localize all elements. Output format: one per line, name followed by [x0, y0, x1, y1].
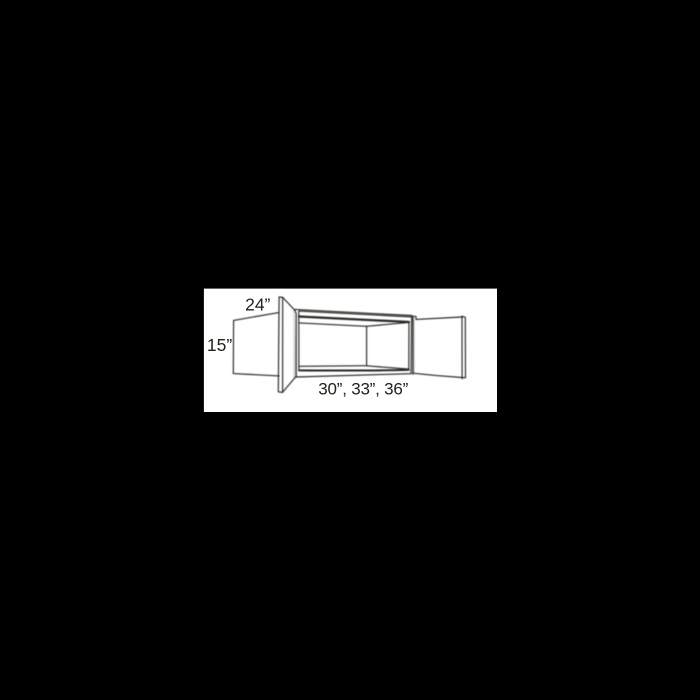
svg-text:15”: 15” [207, 335, 232, 355]
svg-text:24”: 24” [245, 295, 270, 315]
svg-text:30”, 33”, 36”: 30”, 33”, 36” [318, 380, 408, 399]
